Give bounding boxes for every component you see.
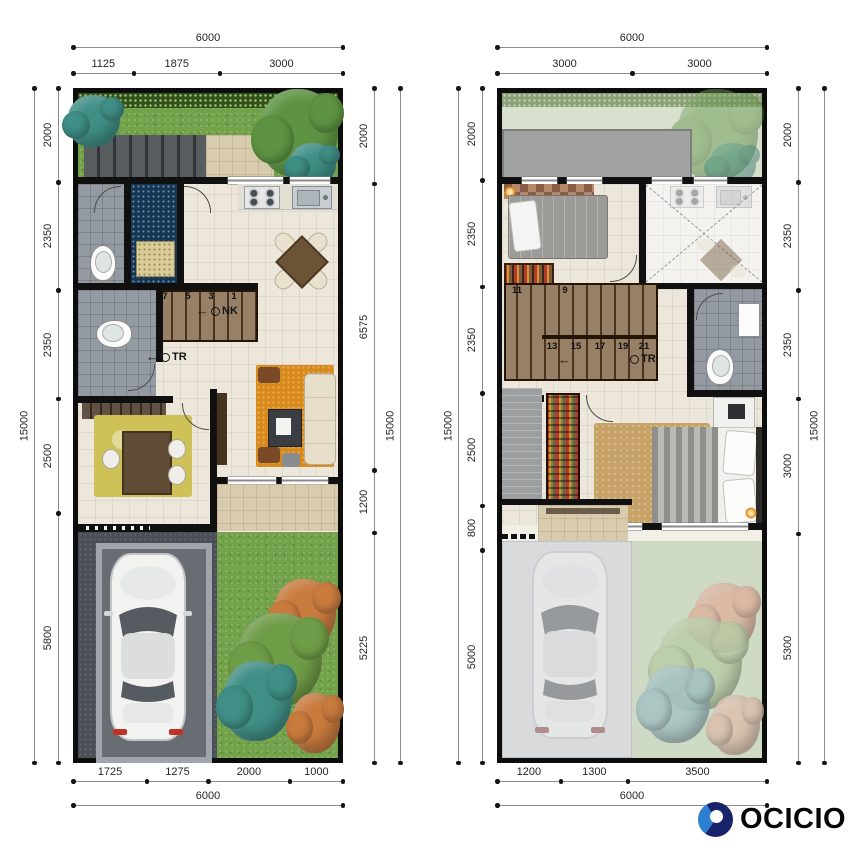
dim-label: 2350 [42,224,54,248]
dim-label: 5000 [466,644,478,668]
wall [124,177,131,283]
dim-label: 1125 [92,58,116,70]
wall [210,477,217,531]
gf-dim-left-total: 15000 [16,88,38,763]
front-fence [80,526,150,530]
dim-label: 3000 [269,58,293,70]
dim-label: 5800 [42,626,54,650]
stairs-down-label: TR [146,351,187,363]
uf-dim-bottom-segments: 1200 1300 3500 [497,766,767,786]
sofa [304,373,336,465]
uf-dim-top-total: 6000 [497,32,767,52]
window [652,177,682,184]
wall [687,289,694,395]
bedroom-table [122,431,172,495]
fence [502,534,536,539]
window [522,177,557,184]
dim-label: 1275 [165,766,189,778]
bathroom-sink [738,303,760,337]
terrace [217,484,338,531]
dim-label: 15000 [808,410,820,441]
stair-step-number: 15 [569,341,583,352]
headboard [756,427,762,525]
balcony-rack [546,508,620,514]
gf-dim-top-total: 6000 [73,32,343,52]
dim-label: 2350 [466,328,478,352]
dim-label: 2500 [466,437,478,461]
stove [244,186,280,209]
sink-below-faded [716,186,752,208]
dim-label: 1300 [582,766,606,778]
gf-dim-right-total: 15000 [382,88,404,763]
dim-label: 15000 [18,410,30,441]
stair-step-number: 3 [204,291,218,302]
uf-dim-left-segments: 2000 2350 2350 2500 800 5000 [464,88,486,763]
dim-label: 1875 [165,58,189,70]
floorplan-sheet: 7 5 3 1 NK TR [0,0,850,850]
dim-label: 2350 [782,332,794,356]
pillow [722,430,758,477]
wall [687,390,762,397]
stair-step-number: 11 [510,285,524,296]
stairs-down-label: TR [630,353,656,365]
chair [168,439,186,459]
armchair [258,367,280,383]
kitchen-sink [292,186,332,209]
dim-label: 2000 [358,124,370,148]
dim-label: 2000 [466,122,478,146]
dim-label: 5225 [358,636,370,660]
circle-marker-icon [211,307,220,316]
dim-label: 3000 [552,58,576,70]
dim-label: 2350 [42,332,54,356]
uf-dim-right-segments: 2000 2350 2350 3000 5300 [780,88,802,763]
stair-step-number: 19 [616,341,630,352]
chair-below-faded [730,265,746,278]
ground-floor-plan: 7 5 3 1 NK TR [73,88,343,763]
dim-label: 6000 [196,32,220,44]
dim-label: 1725 [98,766,122,778]
dim-label: 2000 [237,766,261,778]
dim-label: 2000 [782,123,794,147]
brand-name: OCICIO [740,803,846,836]
dim-label: 800 [466,519,478,537]
chair [168,465,186,485]
dim-label: 1000 [304,766,328,778]
dim-label: 1200 [517,766,541,778]
toilet [90,245,116,281]
wall [78,177,228,184]
ceiling-lamp [745,507,757,519]
dim-label: 6000 [196,790,220,802]
bookshelf [504,263,554,285]
window [567,177,602,184]
wall [639,177,646,289]
chair [102,449,120,469]
dim-label: 2000 [42,123,54,147]
left-arrow-icon [196,306,209,316]
left-arrow-icon [146,352,159,362]
uf-dim-right-total: 15000 [806,88,828,763]
wall [283,177,290,184]
dim-label: 15000 [442,410,454,441]
stair-divider [542,335,658,339]
wall [177,177,184,283]
armchair [258,447,280,463]
dim-label: 1200 [358,489,370,513]
dim-label: 2350 [782,224,794,248]
dim-label: 2350 [466,221,478,245]
pillow [508,199,542,252]
gf-dim-bottom-total: 6000 [73,790,343,810]
window [694,177,727,184]
dim-label: 3000 [782,454,794,478]
laptop [728,404,745,419]
uf-dim-left-total: 15000 [440,88,462,763]
gf-dim-top-segments: 1125 1875 3000 [73,58,343,78]
stair-step-number: 9 [558,285,572,296]
dim-label: 15000 [384,410,396,441]
wall [78,396,173,403]
stairs-down: 11 9 13 15 17 19 21 [504,283,658,381]
gf-dim-right-segments: 2000 6575 1200 5225 [356,88,378,763]
toilet [706,349,734,385]
wardrobe-open [546,393,580,501]
dim-label: 3000 [687,58,711,70]
dim-label: 6000 [620,790,644,802]
left-arrow-icon [558,355,571,365]
stair-step-number: 21 [637,341,651,352]
sliding-door [228,477,276,484]
dim-label: 2500 [42,444,54,468]
mat [136,241,175,277]
wall [330,177,338,184]
shaft-gray [502,388,542,505]
dim-label: 3500 [685,766,709,778]
dim-label: 6575 [358,315,370,339]
roof-slab [502,129,692,181]
stair-step-number: 5 [181,291,195,302]
stair-step-number: 1 [227,291,241,302]
upper-arrow [558,355,571,365]
stair-step-number: 13 [545,341,559,352]
car-below-faded [526,549,614,741]
tv-cabinet [217,393,227,465]
gf-dim-left-segments: 2000 2350 2350 2500 5800 [40,88,62,763]
dim-label: 6000 [620,32,644,44]
coffee-table-tray [276,418,291,435]
car-top-view [104,551,192,743]
chair-below-faded [698,238,714,251]
kitchen-window [228,177,283,184]
circle-marker-icon [630,355,639,364]
brand-logo: OCICIO [698,802,846,837]
window [662,523,748,530]
upper-floor-plan: 11 9 13 15 17 19 21 TR [497,88,767,763]
ocicio-logo-icon [698,802,733,837]
bed-blanket-striped [652,427,718,525]
circle-marker-icon [161,353,170,362]
stair-step-number: 17 [593,341,607,352]
uf-dim-top-segments: 3000 3000 [497,58,767,78]
gf-dim-bottom-segments: 1725 1275 2000 1000 [73,766,343,786]
toilet [96,320,132,348]
wall [78,283,258,290]
stairs-up-label: NK [196,305,238,317]
ottoman [282,453,300,467]
dim-label: 5300 [782,636,794,660]
stove-below-faded [670,186,704,208]
kitchen-window [290,177,330,184]
sliding-door [282,477,328,484]
